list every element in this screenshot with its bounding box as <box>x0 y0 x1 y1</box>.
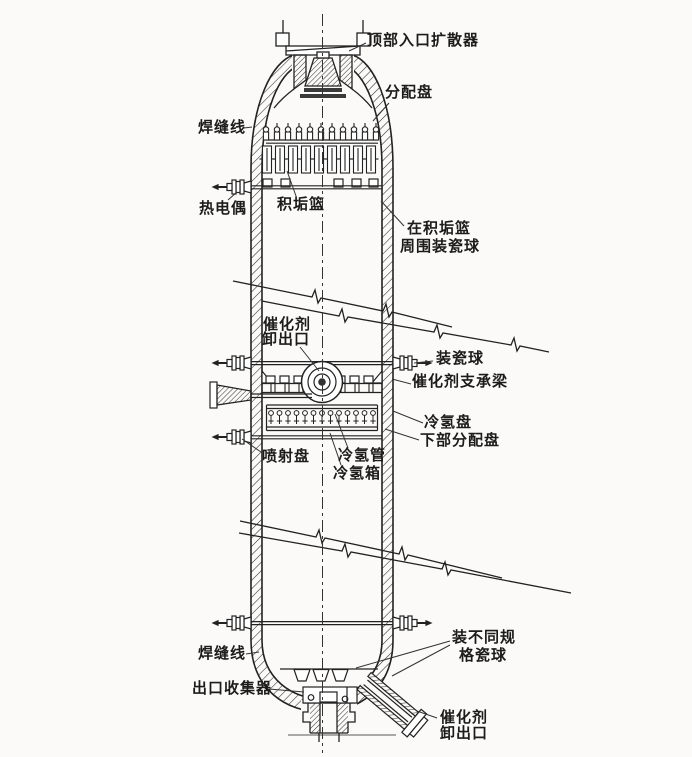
label-different-spec-balls-2: 格瓷球 <box>459 648 507 663</box>
label-cold-hydrogen-tray: 冷氢盘 <box>424 415 472 430</box>
label-thermocouple: 热电偶 <box>199 201 247 216</box>
distribution-tray-caps <box>263 123 378 143</box>
label-different-spec-balls-1: 装不同规 <box>452 630 516 645</box>
label-balls-around-basket-1: 在积垢篮 <box>407 221 471 236</box>
scale-baskets <box>260 146 379 187</box>
label-scale-basket: 积垢篮 <box>277 197 325 212</box>
label-catalyst-support-beam: 催化剂支承梁 <box>412 374 508 389</box>
label-balls-around-basket-2: 周围装瓷球 <box>400 239 480 254</box>
label-cold-hydrogen-box: 冷氢箱 <box>333 466 381 481</box>
label-spray-tray: 喷射盘 <box>262 449 310 464</box>
label-catalyst-unload-btm-1: 催化剂 <box>440 710 488 725</box>
label-outlet-collector: 出口收集器 <box>192 681 272 696</box>
catalyst-discharge-nozzle <box>354 670 430 741</box>
lower-break-lines <box>239 521 571 593</box>
reactor-vessel-drawing <box>0 0 692 757</box>
label-cold-hydrogen-pipe: 冷氢管 <box>338 448 386 463</box>
label-distribution-tray: 分配盘 <box>385 85 433 100</box>
label-weld-line-top: 焊缝线 <box>198 120 246 135</box>
label-catalyst-unload-btm-2: 卸出口 <box>440 726 488 741</box>
label-catalyst-unload-mid-2: 卸出口 <box>262 332 310 347</box>
label-load-ceramic-balls: 装瓷球 <box>436 351 484 366</box>
reactor-diagram-page: 顶部入口扩散器 分配盘 焊缝线 热电偶 积垢篮 在积垢篮 周围装瓷球 催化剂 卸… <box>0 0 692 757</box>
top-flange-bolt-left <box>276 33 289 46</box>
label-lower-distribution-tray: 下部分配盘 <box>420 433 500 448</box>
label-top-inlet-diffuser: 顶部入口扩散器 <box>367 33 479 48</box>
lower-distribution-tray-line <box>213 430 382 444</box>
label-weld-line-bottom: 焊缝线 <box>198 646 246 661</box>
